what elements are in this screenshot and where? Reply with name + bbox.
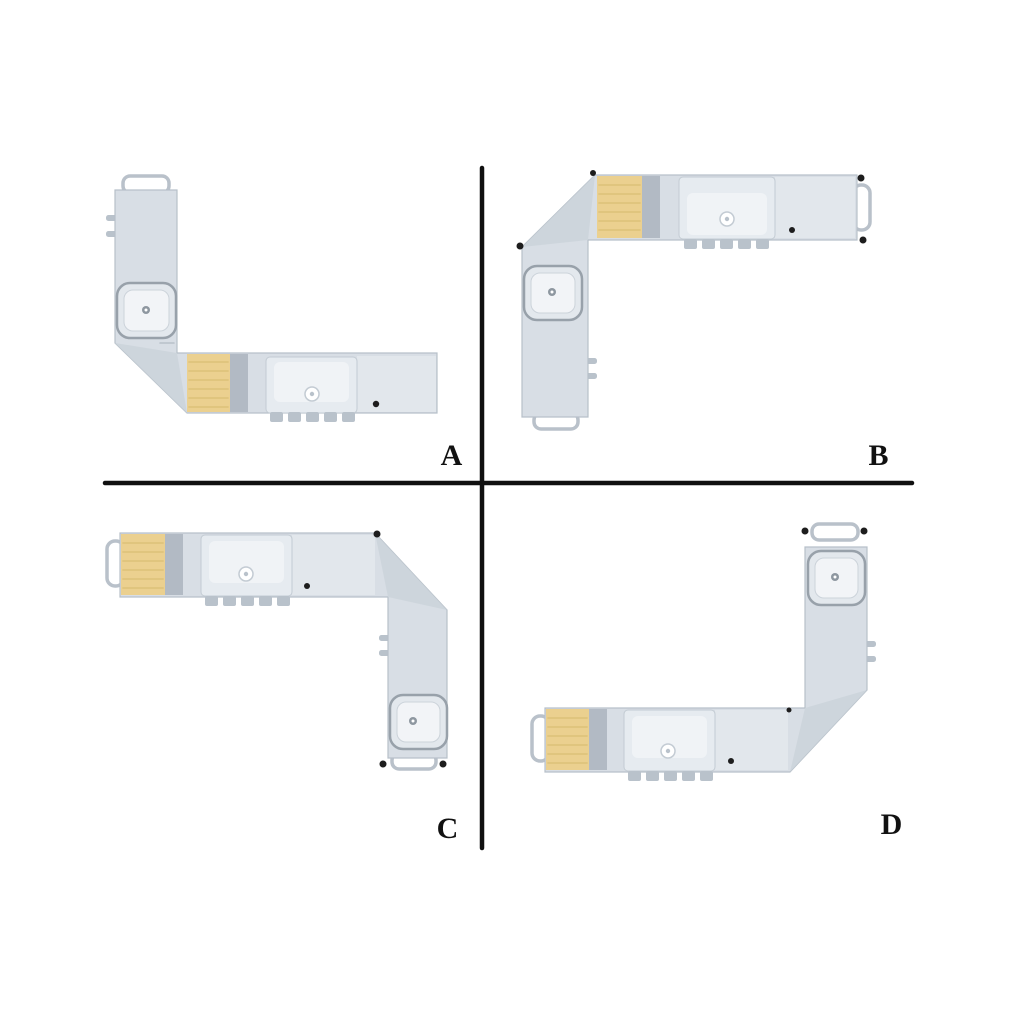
screw-dot: [517, 243, 524, 250]
puzzle-canvas: A B C D: [0, 0, 1024, 1024]
figure-c: [107, 531, 447, 770]
stove-knob-tab: [205, 596, 218, 606]
screw-dot: [802, 528, 809, 535]
stove-knob-tab: [646, 771, 659, 781]
screw-dot: [858, 175, 865, 182]
option-label-a: A: [441, 439, 464, 473]
figure-d: [532, 524, 876, 781]
stove-burner-knob-center: [310, 392, 314, 396]
stove-knob-tab: [223, 596, 236, 606]
stove-knob-tab: [738, 239, 751, 249]
board-shadow-strip: [165, 534, 183, 595]
stove-knob-tab: [702, 239, 715, 249]
board-shadow-strip: [230, 354, 248, 412]
screw-dot: [380, 761, 387, 768]
screw-dot: [304, 583, 310, 589]
option-label-d: D: [881, 808, 904, 842]
board-shadow-strip: [589, 709, 607, 770]
stove-knob-tab: [277, 596, 290, 606]
screw-dot: [787, 708, 792, 713]
option-label-b: B: [868, 439, 889, 473]
stove-knob-tab: [756, 239, 769, 249]
end-handle: [812, 524, 858, 540]
board-shadow-strip: [642, 176, 660, 238]
figure-a: [106, 176, 437, 422]
corner-bevel: [375, 533, 447, 610]
stove-knob-tab: [684, 239, 697, 249]
stove-knob-tab: [324, 412, 337, 422]
option-label-c: C: [437, 812, 460, 846]
stove-knob-tab: [342, 412, 355, 422]
stove-knob-tab: [682, 771, 695, 781]
counter-end-section: [357, 356, 436, 412]
stove-knob-tab: [664, 771, 677, 781]
counter-end-section: [715, 710, 788, 770]
screw-dot: [590, 170, 596, 176]
stove-knob-tab: [306, 412, 319, 422]
screw-dot: [440, 761, 447, 768]
sink-drain-center: [145, 309, 148, 312]
screw-dot: [374, 531, 381, 538]
screw-dot: [860, 237, 867, 244]
stove-burner-knob-center: [725, 217, 729, 221]
stove-knob-tab: [720, 239, 733, 249]
stove-knob-tab: [288, 412, 301, 422]
sink-basin: [397, 702, 440, 742]
counter-end-section: [775, 177, 855, 238]
figure-b: [517, 170, 871, 429]
screw-dot: [728, 758, 734, 764]
stove-burner-knob-center: [244, 572, 248, 576]
counter-orientation-diagram: [0, 0, 1024, 1024]
screw-dot: [789, 227, 795, 233]
stove-knob-tab: [259, 596, 272, 606]
stove-knob-tab: [628, 771, 641, 781]
sink-drain-center: [834, 576, 837, 579]
screw-dot: [861, 528, 868, 535]
screw-dot: [373, 401, 379, 407]
stove-knob-tab: [700, 771, 713, 781]
stove-burner-knob-center: [666, 749, 670, 753]
sink-drain-center: [551, 291, 554, 294]
stove-knob-tab: [270, 412, 283, 422]
stove-knob-tab: [241, 596, 254, 606]
sink-drain-center: [412, 720, 415, 723]
